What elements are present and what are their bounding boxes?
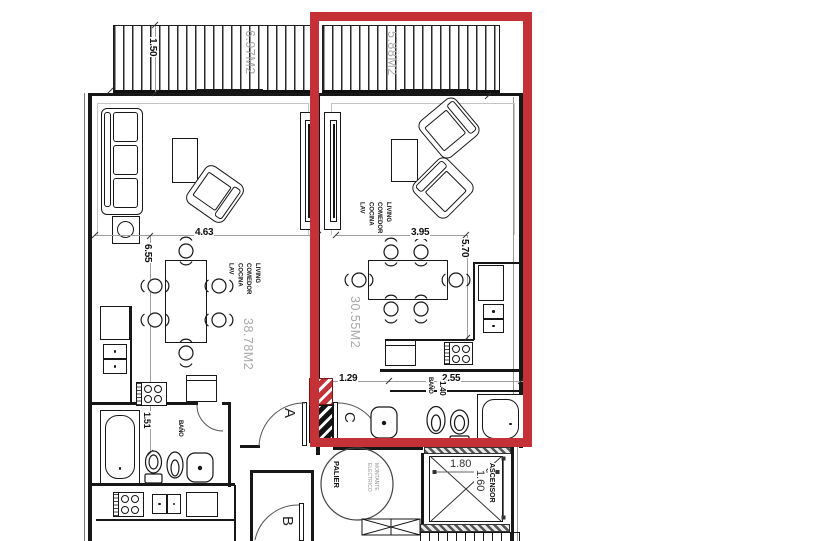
room-label-line: COCINA — [235, 263, 244, 294]
balcony-left-area-label: 6.97M2 — [243, 30, 257, 75]
drain-dot — [158, 503, 161, 506]
riser-note: MONTANTE ELECTRICO — [365, 463, 379, 492]
balcony-left — [113, 25, 318, 93]
unit-line — [187, 380, 216, 381]
drain-dot — [198, 466, 201, 469]
burner — [144, 395, 152, 403]
area-label-left: 38.78M2 — [241, 318, 255, 370]
burner — [154, 385, 162, 393]
door-leaf-a — [302, 402, 307, 446]
stove-knobs — [114, 493, 119, 516]
wall-palier-top — [333, 447, 423, 450]
toilet-bowl — [149, 455, 158, 469]
balcony-door-left — [197, 89, 263, 94]
sink — [187, 453, 213, 482]
wall-outer-left-line — [84, 93, 85, 541]
wall-left — [88, 93, 92, 541]
stove-left — [136, 382, 167, 406]
coffee-table-left — [172, 138, 198, 183]
elevator-label: ASCENSOR — [488, 463, 495, 503]
burner — [131, 506, 139, 514]
counter-edge-lower — [96, 519, 236, 521]
fridge-left — [100, 306, 130, 340]
knob-dot — [114, 365, 117, 368]
sofa-cushion — [113, 178, 138, 208]
kitchen-unit-left — [186, 375, 217, 402]
sink-bowl — [152, 494, 167, 514]
bidet-bowl — [171, 460, 179, 476]
riser-note-line: MONTANTE — [372, 463, 379, 492]
drain-dot — [173, 503, 176, 506]
wall-lower-unit-right-a — [250, 470, 253, 541]
highlight-box — [310, 12, 532, 447]
bath-label-left: BAÑO — [176, 419, 184, 437]
burner — [144, 385, 152, 393]
wall-elevator-left — [421, 453, 424, 528]
palier-label: PALIER — [332, 461, 341, 488]
wall-bath-corridor — [228, 402, 231, 487]
room-label-line: LAV — [226, 263, 235, 294]
sofa-cushion — [113, 145, 138, 175]
duct-box — [362, 519, 420, 535]
stove-lower-unit — [113, 492, 144, 517]
stair-wall-hatch — [420, 524, 510, 532]
counter-edge-lower-v — [234, 485, 236, 541]
door-leaf-b — [299, 503, 304, 541]
toilet — [146, 451, 162, 473]
room-label-left: LIVING COMEDOR COCINA LAV — [226, 263, 261, 294]
dim-line-balcony-depth — [155, 26, 156, 92]
stairs — [420, 532, 520, 541]
duct-cross — [362, 519, 420, 535]
double-sink-lower-unit — [152, 494, 181, 514]
bidet — [167, 452, 183, 478]
wall-lower-unit-right-b — [311, 470, 314, 541]
door-a-label: A — [281, 408, 298, 418]
room-label-line: COMEDOR — [243, 263, 252, 294]
sofa-back — [104, 112, 111, 207]
plant-pot — [112, 216, 140, 244]
wall-elevator-right-line — [517, 447, 518, 541]
dining-chair — [205, 313, 233, 327]
dim-463: 4.63 — [194, 227, 214, 239]
dining-table-left — [165, 260, 207, 343]
burner — [131, 495, 139, 503]
room-label-line: LIVING — [252, 263, 261, 294]
burner — [121, 506, 129, 514]
knob-dot — [114, 350, 117, 353]
stove-knobs — [137, 383, 142, 405]
wall-elevator-right — [511, 447, 514, 541]
wall-lower-unit-top-b — [250, 470, 314, 473]
bathtub-left — [100, 410, 140, 484]
balcony-depth-dim: 1.50 — [146, 37, 158, 57]
elevator-wall-top — [424, 447, 511, 454]
burner — [154, 395, 162, 403]
door-b-label: B — [279, 516, 296, 526]
toilet-tank — [145, 474, 162, 483]
elevator-depth-dim: 1.60 — [474, 470, 486, 491]
cabinet-door — [103, 359, 127, 374]
kitchen-cabinet-left — [103, 344, 127, 374]
wall-corridor-stub — [240, 445, 260, 448]
duct-outline — [362, 519, 420, 535]
bath-left-fixtures — [145, 451, 213, 483]
sofa — [101, 108, 143, 215]
dim-655: 6.55 — [141, 243, 153, 263]
counter-lower-unit — [186, 492, 218, 517]
sofa-cushion — [113, 112, 138, 142]
burner — [121, 495, 129, 503]
riser-note-line: ELECTRICO — [365, 463, 372, 492]
floor-plan: 1.50 6.97M2 5.88M2 — [0, 0, 819, 541]
dining-chair — [179, 339, 193, 367]
door-swing-bath-left — [197, 405, 223, 431]
duct-cross — [362, 519, 420, 535]
cabinet-door — [103, 344, 127, 359]
sink-bowl — [167, 494, 182, 514]
counter-edge-left — [130, 306, 132, 403]
elevator-width-dim: 1.80 — [449, 458, 472, 470]
dim-151: 1.51 — [141, 411, 152, 429]
drain-dot — [119, 467, 122, 470]
